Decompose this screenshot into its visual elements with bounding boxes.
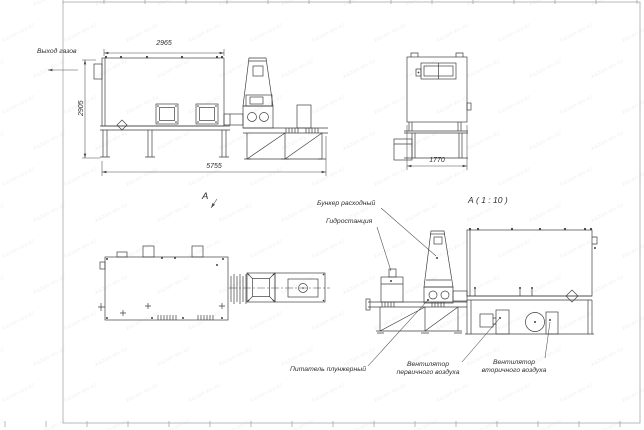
detail-view-title: А ( 1 : 10 ) — [468, 195, 508, 205]
label-feeder: Питатель плунжерный — [290, 366, 366, 374]
dim-height: 2905 — [78, 88, 86, 128]
dim-end-width: 1770 — [417, 157, 457, 165]
dim-chamber-width: 2965 — [144, 40, 184, 48]
top-hatch-1 — [156, 104, 178, 124]
plan-bolts — [106, 257, 224, 319]
lifting-lugs — [411, 53, 463, 57]
label-hopper: Бункер расходный — [317, 200, 375, 208]
discharge-chute — [297, 105, 311, 128]
side-bracket — [467, 103, 471, 110]
flange-bellows-plan — [231, 274, 246, 304]
sight-port-diamond — [117, 120, 127, 130]
combustion-chamber — [102, 58, 224, 126]
discharge-platform — [243, 105, 328, 159]
plan-view — [98, 246, 330, 320]
end-view — [394, 53, 471, 160]
hopper-plan — [247, 273, 275, 302]
anchor-marks — [98, 303, 225, 316]
hydraulic-station — [381, 269, 403, 302]
end-view-hatch — [416, 63, 456, 79]
top-hatch-2 — [196, 104, 218, 124]
end-view-side-box — [394, 139, 412, 160]
chamber-base-frame — [100, 126, 230, 157]
view-a-label: А — [202, 191, 208, 202]
drawing-sheet: kazan-wv.kzkazan-wv.kzkazan-wv.kzkazan-w… — [0, 0, 644, 430]
feeder-assembly — [224, 106, 273, 128]
primary-air-fan — [480, 310, 509, 334]
conveyor — [366, 299, 467, 333]
hydraulic-station-plan — [275, 273, 325, 302]
hopper-tower-side — [243, 58, 273, 106]
main-view-dimensions — [48, 49, 326, 176]
chamber-plan — [105, 257, 228, 320]
label-hydraulic-station: Гидростанция — [326, 218, 372, 226]
label-secondary-fan: Вентилятор вторичного воздуха — [476, 359, 552, 375]
dim-total-length: 5755 — [194, 163, 234, 171]
end-view-body — [407, 57, 467, 122]
chamber-bracket — [592, 237, 597, 244]
view-direction-arrow — [211, 199, 217, 208]
chamber-detail — [467, 228, 597, 296]
detail-view-a — [366, 228, 597, 334]
main-side-view — [94, 56, 328, 159]
callout-leaders — [368, 208, 550, 366]
label-primary-fan: Вентилятор первичного воздуха — [390, 361, 466, 377]
hopper-tower-detail — [424, 231, 453, 287]
label-gas-outlet: Выход газов — [37, 48, 77, 56]
plunger-feeder — [424, 287, 467, 303]
secondary-air-fan — [526, 312, 559, 334]
gas-outlet-stub — [94, 64, 102, 79]
